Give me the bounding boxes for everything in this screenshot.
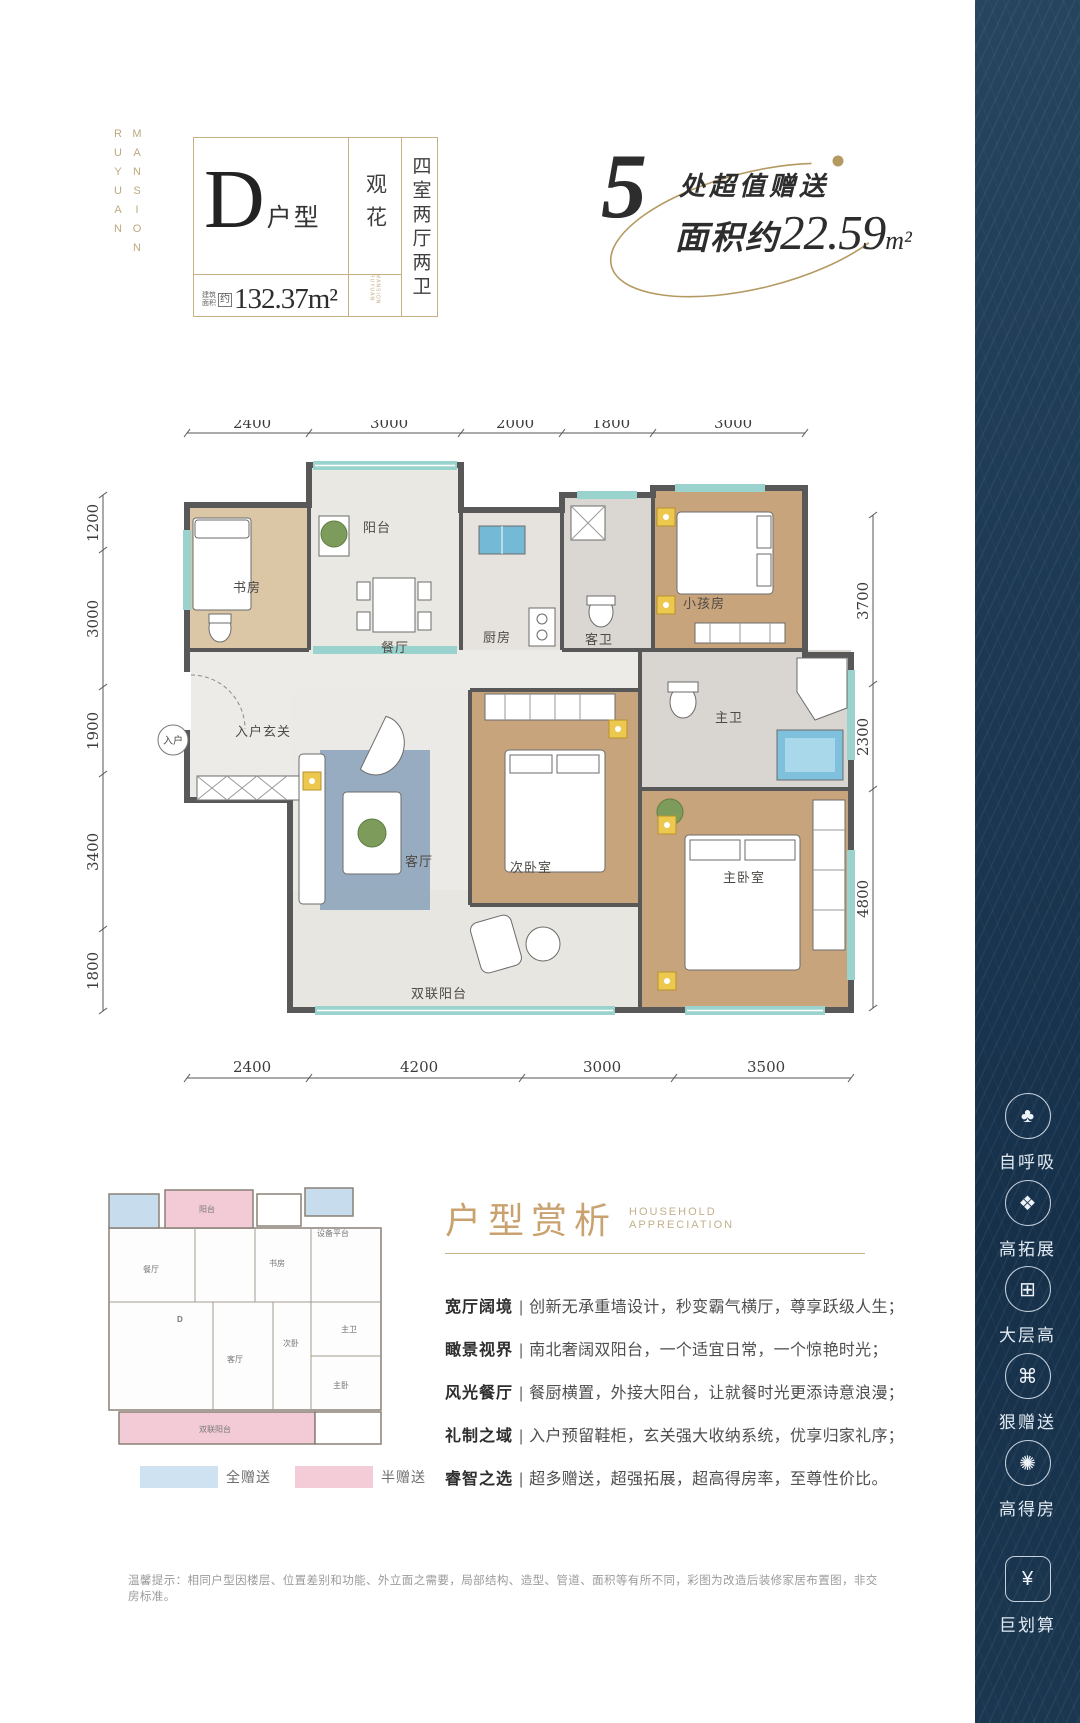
svg-text:书房: 书房 bbox=[269, 1258, 285, 1268]
card-watermark: RUYUAN MANSION bbox=[348, 274, 401, 317]
area-prefix: 建筑 面积 bbox=[202, 292, 216, 308]
brand-vertical-text: MANSION bbox=[131, 128, 143, 261]
gift-line2: 面积约 22.59 m² bbox=[675, 204, 912, 261]
svg-text:3000: 3000 bbox=[583, 1058, 621, 1076]
feature-sidebar: ♣ 自呼吸 ❖ 高拓展 ⊞ 大层高 ⌘ 狠赠送 ✺ 高得房 ¥ 巨划算 bbox=[975, 0, 1080, 1723]
gift-icon: ⌘ bbox=[1005, 1353, 1051, 1399]
svg-text:4800: 4800 bbox=[854, 880, 872, 918]
mini-plan-d-label: D bbox=[177, 1315, 183, 1324]
svg-text:次卧室: 次卧室 bbox=[510, 860, 552, 875]
feature-item: ✺ 高得房 bbox=[975, 1440, 1080, 1520]
svg-text:3500: 3500 bbox=[747, 1058, 785, 1076]
svg-text:2400: 2400 bbox=[233, 420, 271, 432]
svg-text:3000: 3000 bbox=[714, 420, 752, 432]
svg-text:3000: 3000 bbox=[370, 420, 408, 432]
analysis-header: 户型赏析 HOUSEHOLD APPRECIATION bbox=[445, 1192, 734, 1244]
svg-text:次卧: 次卧 bbox=[283, 1338, 299, 1348]
svg-text:主卫: 主卫 bbox=[341, 1324, 357, 1334]
svg-text:设备平台: 设备平台 bbox=[317, 1228, 349, 1238]
unit-type-letter: D bbox=[204, 152, 265, 248]
svg-text:餐厅: 餐厅 bbox=[381, 640, 409, 655]
value-yuan-icon: ¥ bbox=[1005, 1556, 1051, 1602]
unit-type-suffix: 户型 bbox=[267, 198, 321, 234]
legend-swatch-half bbox=[295, 1466, 373, 1488]
svg-text:入户玄关: 入户玄关 bbox=[235, 724, 291, 739]
efficiency-flower-icon: ✺ bbox=[1005, 1440, 1051, 1486]
feature-item: ⌘ 狠赠送 bbox=[975, 1353, 1080, 1433]
svg-text:厨房: 厨房 bbox=[483, 630, 511, 645]
legend-swatch-full bbox=[140, 1466, 218, 1488]
svg-text:小孩房: 小孩房 bbox=[683, 596, 725, 611]
svg-text:1900: 1900 bbox=[85, 712, 102, 750]
analysis-item: 宽厅阔境|创新无承重墙设计，秒变霸气横厅，尊享跃级人生； bbox=[445, 1286, 890, 1329]
svg-text:主卧室: 主卧室 bbox=[723, 870, 765, 885]
analysis-list: 宽厅阔境|创新无承重墙设计，秒变霸气横厅，尊享跃级人生； 瞰景视界|南北奢阔双阳… bbox=[445, 1286, 890, 1501]
layout-label: 四室两厅两卫 bbox=[401, 138, 439, 318]
breathing-tree-icon: ♣ bbox=[1005, 1093, 1051, 1139]
legend-label: 半赠送 bbox=[381, 1467, 426, 1487]
svg-text:2000: 2000 bbox=[496, 420, 534, 432]
analysis-item: 睿智之选|超多赠送，超强拓展，超高得房率，至尊性价比。 bbox=[445, 1458, 890, 1501]
unit-info-card: D 户型 建筑 面积 约 132.37m² 观花 RUYUAN MANSION … bbox=[193, 137, 438, 317]
svg-text:双联阳台: 双联阳台 bbox=[199, 1424, 231, 1434]
svg-text:主卧: 主卧 bbox=[333, 1380, 349, 1390]
svg-text:入户: 入户 bbox=[163, 734, 183, 747]
mini-plan: 阳台 设备平台 书房 餐厅 客厅 次卧 主卫 主卧 双联阳台 D bbox=[95, 1180, 395, 1460]
legend-label: 全赠送 bbox=[226, 1467, 271, 1487]
analysis-item: 风光餐厅|餐厨横置，外接大阳台，让就餐时光更添诗意浪漫； bbox=[445, 1372, 890, 1415]
svg-text:阳台: 阳台 bbox=[199, 1204, 215, 1214]
view-label: 观花 bbox=[348, 138, 401, 274]
svg-text:2300: 2300 bbox=[854, 718, 872, 756]
svg-text:1200: 1200 bbox=[85, 504, 102, 542]
feature-item: ❖ 高拓展 bbox=[975, 1180, 1080, 1260]
area-value: 132.37m² bbox=[234, 283, 337, 316]
gift-badge: 5 处超值赠送 面积约 22.59 m² bbox=[575, 118, 915, 308]
svg-text:主卫: 主卫 bbox=[715, 710, 743, 725]
analysis-title: 户型赏析 bbox=[445, 1192, 617, 1244]
ceiling-height-icon: ⊞ bbox=[1005, 1266, 1051, 1312]
svg-text:双联阳台: 双联阳台 bbox=[411, 986, 467, 1001]
gift-line1: 处超值赠送 bbox=[679, 166, 829, 203]
svg-text:阳台: 阳台 bbox=[363, 520, 391, 535]
floor-plan: 阳台 书房 餐厅 厨房 客卫 小孩房 入户玄关 入户 客厅 次卧室 主卫 主卧室… bbox=[85, 420, 885, 1105]
feature-item: ♣ 自呼吸 bbox=[975, 1093, 1080, 1173]
gift-number: 5 bbox=[601, 136, 647, 236]
svg-text:3000: 3000 bbox=[85, 600, 102, 638]
gold-divider bbox=[445, 1253, 865, 1254]
svg-text:客厅: 客厅 bbox=[405, 854, 433, 869]
svg-text:客厅: 客厅 bbox=[227, 1354, 243, 1364]
svg-text:餐厅: 餐厅 bbox=[143, 1265, 159, 1274]
gift-legend: 全赠送 半赠送 bbox=[140, 1466, 450, 1488]
svg-text:4200: 4200 bbox=[400, 1058, 438, 1076]
analysis-item: 瞰景视界|南北奢阔双阳台，一个适宜日常，一个惊艳时光； bbox=[445, 1329, 890, 1372]
svg-text:客卫: 客卫 bbox=[585, 632, 613, 647]
brand-vertical-text: RUYUAN bbox=[112, 128, 124, 242]
disclaimer-text: 温馨提示：相同户型因楼层、位置差别和功能、外立面之需要，局部结构、造型、管道、面… bbox=[128, 1572, 878, 1604]
expand-icon: ❖ bbox=[1005, 1180, 1051, 1226]
analysis-subtitle: HOUSEHOLD APPRECIATION bbox=[629, 1192, 734, 1244]
analysis-item: 礼制之域|入户预留鞋柜，玄关强大收纳系统，优享归家礼序； bbox=[445, 1415, 890, 1458]
svg-text:书房: 书房 bbox=[233, 580, 261, 595]
svg-text:3700: 3700 bbox=[854, 582, 872, 620]
feature-item: ¥ 巨划算 bbox=[975, 1556, 1080, 1636]
svg-text:1800: 1800 bbox=[592, 420, 630, 432]
svg-text:2400: 2400 bbox=[233, 1058, 271, 1076]
svg-text:3400: 3400 bbox=[85, 833, 102, 871]
svg-text:1800: 1800 bbox=[85, 952, 102, 990]
feature-item: ⊞ 大层高 bbox=[975, 1266, 1080, 1346]
approx-box: 约 bbox=[218, 293, 232, 307]
mini-plan-shapes bbox=[109, 1188, 381, 1444]
poster-page: RUYUAN MANSION D 户型 建筑 面积 约 132.37m² 观花 … bbox=[0, 0, 1080, 1723]
